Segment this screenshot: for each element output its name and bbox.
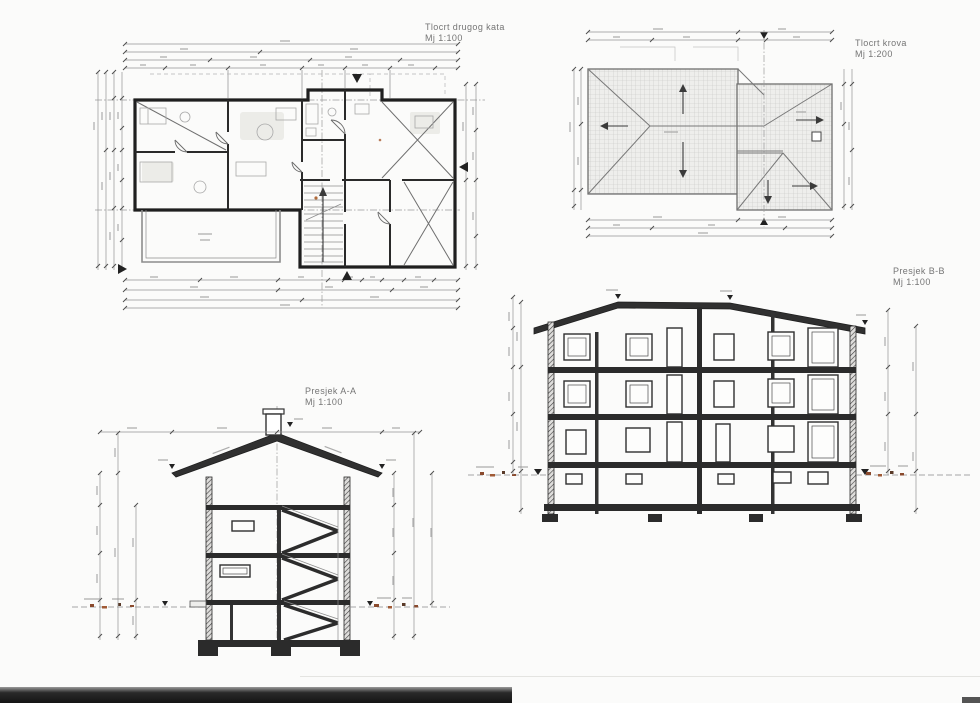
floor-plan-svg (80, 12, 500, 312)
roof-overhang-dashed (150, 74, 445, 96)
axis-lines (95, 70, 485, 308)
section-aa-title: Presjek A-A (305, 386, 356, 396)
staircase-section (282, 506, 338, 640)
exterior-walls (135, 90, 455, 267)
scan-speck (314, 196, 317, 199)
room-smudges (142, 112, 440, 182)
roof-plan-title: Tlocrt krova (855, 38, 907, 48)
floor-plan-drawing (80, 12, 500, 317)
section-aa-drawing (72, 378, 450, 695)
dimension-chains-bottom (123, 277, 460, 310)
dimension-chains-right (463, 82, 478, 270)
bottom-scan-bar (0, 687, 512, 703)
eave-dashed (620, 47, 738, 61)
roof-plan-label: Tlocrt krova Mj 1:200 (855, 38, 907, 60)
interior-openings (220, 521, 254, 577)
chimney (812, 132, 821, 141)
section-bb-label: Presjek B-B Mj 1:100 (893, 266, 945, 288)
floor-plan-title: Tlocrt drugog kata (425, 22, 505, 32)
roof-plan-scale: Mj 1:200 (855, 49, 907, 60)
dimension-chains-top (123, 41, 460, 98)
bottom-scan-speck (962, 697, 980, 703)
section-aa-scale: Mj 1:100 (305, 397, 356, 408)
aa-dimension-chains (97, 428, 434, 640)
section-aa-svg (72, 378, 450, 690)
drawing-sheet: Tlocrt drugog kata Mj 1:100 (0, 0, 980, 703)
ground-specks (480, 471, 904, 477)
footings (198, 647, 360, 656)
floor-plan-scale: Mj 1:100 (425, 33, 505, 44)
chimney (263, 409, 284, 435)
section-bb-scale: Mj 1:100 (893, 277, 945, 288)
interior-walls (135, 90, 455, 267)
section-bb-drawing (468, 252, 973, 549)
staircase-plan (304, 186, 343, 262)
page-edge-line (300, 676, 980, 677)
footings (542, 514, 862, 522)
section-bb-title: Presjek B-B (893, 266, 945, 276)
cross-diagonals (137, 102, 453, 265)
roof-surfaces (588, 69, 832, 210)
section-bb-svg (468, 252, 973, 544)
floor-plan-label: Tlocrt drugog kata Mj 1:100 (425, 22, 505, 44)
scan-speck (379, 139, 382, 142)
section-aa-label: Presjek A-A Mj 1:100 (305, 386, 356, 408)
balcony (142, 210, 280, 262)
